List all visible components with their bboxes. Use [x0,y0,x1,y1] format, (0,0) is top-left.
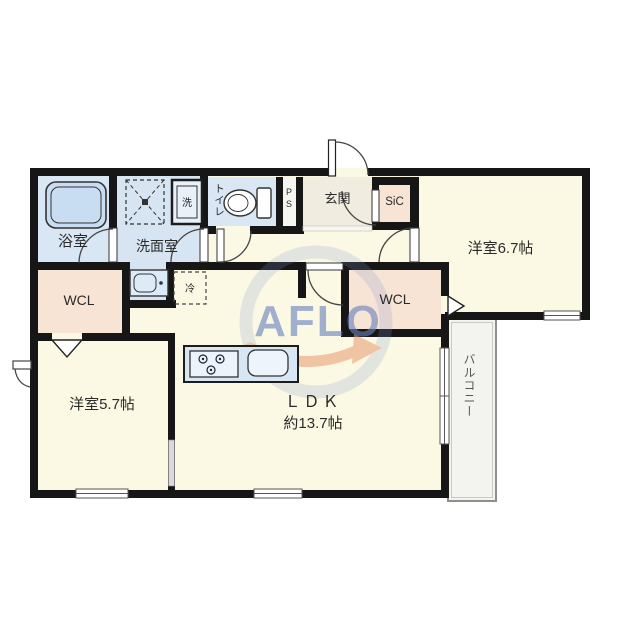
label-bedroom-west: 洋室5.7帖 [36,393,168,414]
label-pipe-space: PS [284,187,294,211]
refrigerator-space-icon: 冷 [174,272,206,304]
label-shoe-closet: SiC [379,196,410,208]
hatch-box-icon [126,180,164,224]
toilet-icon [224,188,271,218]
window-casement-west [13,361,31,387]
entrance-step-line [303,226,372,231]
kitchen-counter-icon [184,346,298,382]
window-ldk-bottom [254,489,302,498]
window-bedroom-west-bottom [76,489,128,498]
floorplan-canvas: 洗 冷 浴室 [0,0,640,640]
label-bath: 浴室 [37,230,109,251]
svg-text:冷: 冷 [185,282,195,295]
folding-door-wcl-right [448,296,464,316]
window-bedroom-east-bottom [544,311,580,320]
label-bedroom-east: 洋室6.7帖 [419,237,582,258]
aflo-watermark-text: AFLO [238,297,398,347]
label-toilet: トイレ [212,183,227,218]
door-toilet [217,229,251,262]
vanity-sink-icon [130,270,168,296]
bathtub-icon [46,182,106,228]
sliding-door-bedroom-west [169,440,175,486]
label-washroom: 洗面室 [112,236,202,256]
folding-door-wcl-left [52,340,82,357]
door-bedroom-east [379,228,419,262]
kitchen-sink-icon [248,350,288,376]
label-ldk-size: 約13.7帖 [240,412,386,433]
svg-text:洗: 洗 [182,197,192,209]
door-entrance [329,140,369,176]
washing-machine-icon: 洗 [172,180,202,224]
label-entrance: 玄関 [303,188,372,207]
window-balcony-slider [440,348,449,444]
label-balcony: バルコニー [461,353,478,418]
label-ldk-name: ＬＤＫ [240,388,386,412]
label-wcl-left: WCL [33,292,125,308]
